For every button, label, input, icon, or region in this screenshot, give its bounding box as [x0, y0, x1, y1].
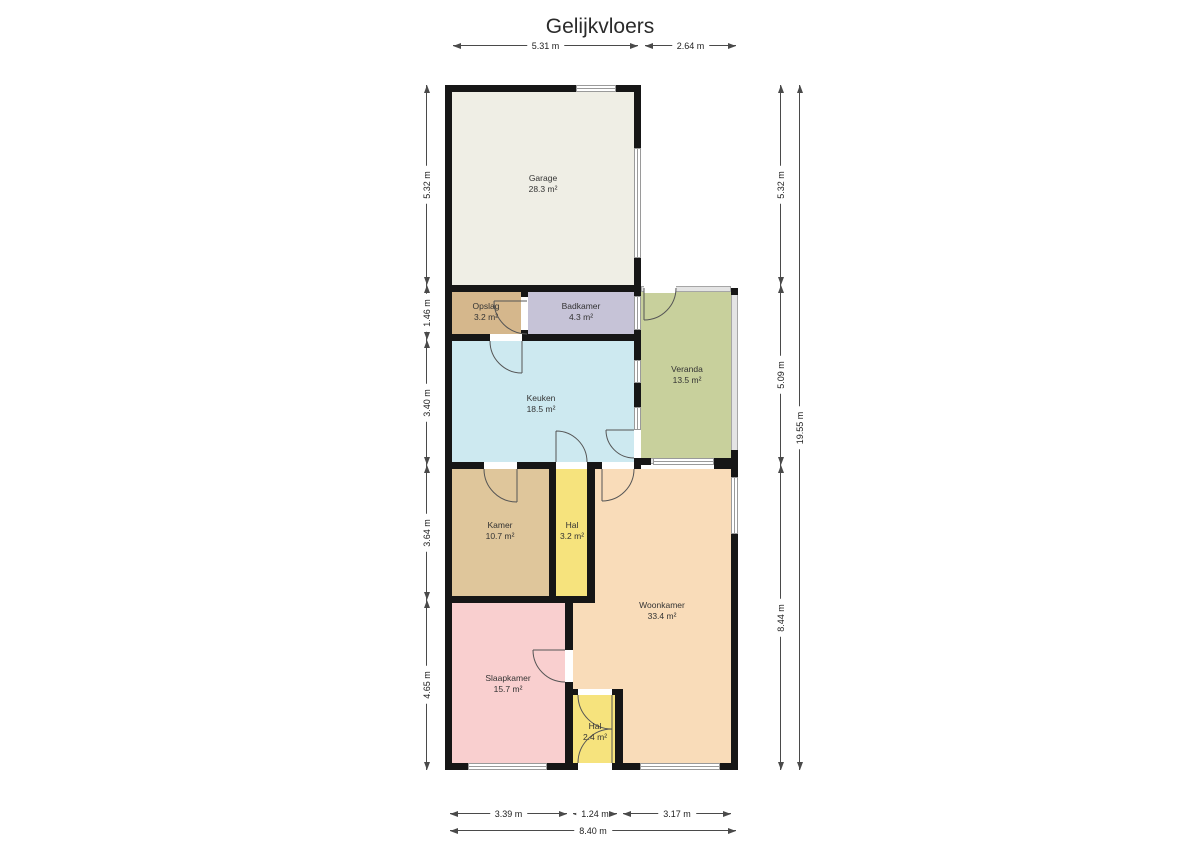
dim-label: 2.64 m — [672, 41, 710, 51]
label-badkamer: Badkamer 4.3 m² — [562, 301, 601, 323]
label-opslag: Opslag 3.2 m² — [473, 301, 500, 323]
dim-label: 3.17 m — [658, 809, 696, 819]
room-area: 33.4 m² — [639, 611, 685, 622]
label-kamer: Kamer 10.7 m² — [486, 520, 515, 542]
label-hal-mid: Hal 3.2 m² — [560, 520, 584, 542]
floorplan-canvas: Gelijkvloers — [0, 0, 1200, 849]
room-name: Badkamer — [562, 301, 601, 312]
dim-label: 5.09 m — [776, 356, 786, 394]
label-veranda: Veranda 13.5 m² — [671, 364, 703, 386]
dim-label: 3.40 m — [422, 384, 432, 422]
dim-right-2: 5.09 m — [780, 285, 781, 465]
room-name: Garage — [529, 173, 558, 184]
door-arc-keuken-right — [606, 430, 634, 458]
room-area: 13.5 m² — [671, 375, 703, 386]
door-arc-veranda — [644, 288, 676, 320]
door-arc-keuken-hal — [556, 431, 587, 462]
dim-label: 3.39 m — [490, 809, 528, 819]
room-area: 10.7 m² — [486, 531, 515, 542]
dim-right-1: 5.32 m — [780, 85, 781, 285]
room-area: 3.2 m² — [473, 312, 500, 323]
room-area: 4.3 m² — [562, 312, 601, 323]
dim-left-3: 3.40 m — [426, 340, 427, 465]
room-name: Woonkamer — [639, 600, 685, 611]
dim-top-1: 5.31 m — [453, 45, 638, 46]
label-garage: Garage 28.3 m² — [529, 173, 558, 195]
door-arc-keuken-top — [490, 341, 522, 373]
dim-label: 5.32 m — [776, 166, 786, 204]
dim-label: 8.40 m — [574, 826, 612, 836]
dim-label: 5.31 m — [527, 41, 565, 51]
room-area: 3.2 m² — [560, 531, 584, 542]
door-arc-kamer — [484, 469, 517, 502]
dim-label: 4.65 m — [422, 666, 432, 704]
room-name: Keuken — [527, 393, 556, 404]
dim-left-5: 4.65 m — [426, 600, 427, 770]
label-keuken: Keuken 18.5 m² — [527, 393, 556, 415]
room-name: Kamer — [486, 520, 515, 531]
room-area: 15.7 m² — [485, 684, 530, 695]
dim-label: 5.32 m — [422, 166, 432, 204]
door-arc-woonkamer — [602, 469, 634, 501]
dim-left-2: 1.46 m — [426, 285, 427, 340]
room-area: 2.4 m² — [583, 732, 607, 743]
dim-top-2: 2.64 m — [645, 45, 736, 46]
door-arc-slaapkamer — [533, 650, 565, 682]
dim-left-4: 3.64 m — [426, 465, 427, 600]
room-name: Hal — [583, 721, 607, 732]
label-woonkamer: Woonkamer 33.4 m² — [639, 600, 685, 622]
room-name: Hal — [560, 520, 584, 531]
dim-bottom-2: 1.24 m — [573, 813, 617, 814]
room-name: Opslag — [473, 301, 500, 312]
dim-label: 1.46 m — [422, 294, 432, 332]
dim-right-total: 19.55 m — [799, 85, 800, 770]
dim-label: 19.55 m — [795, 406, 805, 449]
room-area: 18.5 m² — [527, 404, 556, 415]
dim-label: 1.24 m — [576, 809, 614, 819]
dim-label: 3.64 m — [422, 514, 432, 552]
dim-bottom-1: 3.39 m — [450, 813, 567, 814]
dim-left-1: 5.32 m — [426, 85, 427, 285]
label-hal-bottom: Hal 2.4 m² — [583, 721, 607, 743]
dim-right-3: 8.44 m — [780, 465, 781, 770]
dim-label: 8.44 m — [776, 599, 786, 637]
label-slaapkamer: Slaapkamer 15.7 m² — [485, 673, 530, 695]
room-name: Slaapkamer — [485, 673, 530, 684]
room-area: 28.3 m² — [529, 184, 558, 195]
room-name: Veranda — [671, 364, 703, 375]
dim-bottom-3: 3.17 m — [623, 813, 731, 814]
dim-bottom-total: 8.40 m — [450, 830, 736, 831]
